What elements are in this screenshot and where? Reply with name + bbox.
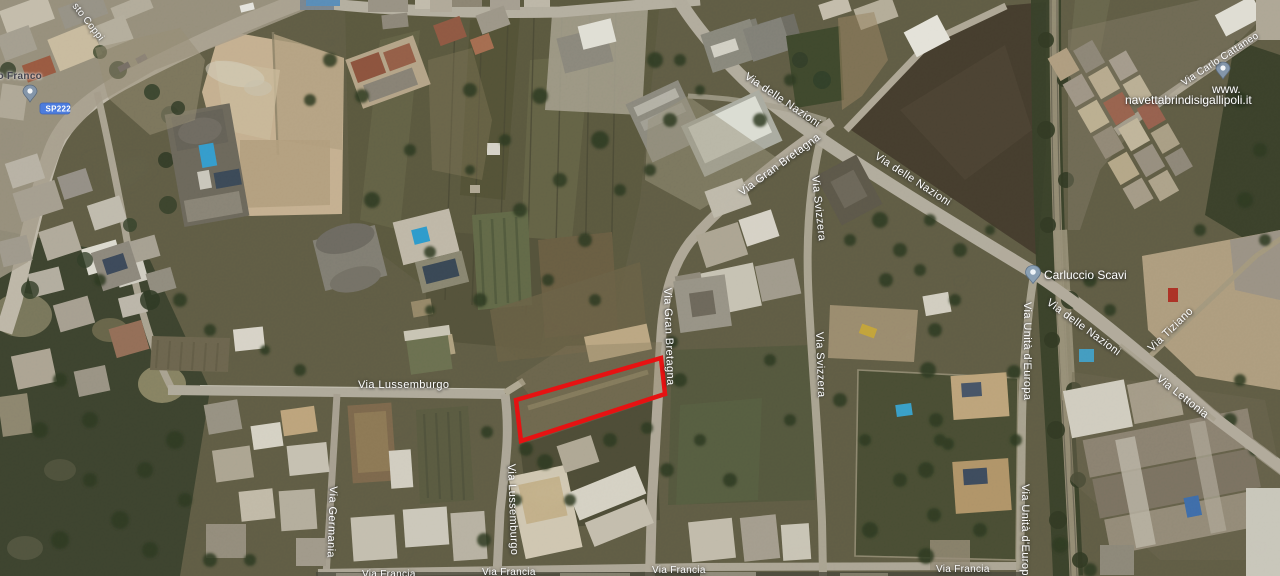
svg-text:Carluccio Scavi: Carluccio Scavi bbox=[1044, 268, 1127, 282]
svg-text:SP222: SP222 bbox=[46, 105, 72, 114]
svg-text:Via Unità d'Europa: Via Unità d'Europa bbox=[1021, 302, 1033, 401]
svg-text:Via Francia: Via Francia bbox=[482, 567, 536, 576]
svg-text:Via Francia: Via Francia bbox=[936, 564, 990, 575]
svg-text:Via Lussemburgo: Via Lussemburgo bbox=[358, 379, 449, 391]
svg-text:Via Unità d'Europa: Via Unità d'Europa bbox=[1019, 484, 1031, 576]
svg-text:Via Francia: Via Francia bbox=[652, 565, 706, 576]
svg-text:Via Svizzera: Via Svizzera bbox=[813, 332, 827, 399]
svg-text:Via Francia: Via Francia bbox=[362, 569, 416, 576]
svg-text:navettabrindisigallipoli.it: navettabrindisigallipoli.it bbox=[1125, 93, 1252, 107]
svg-text:Via Germania: Via Germania bbox=[324, 486, 339, 559]
svg-text:ampo Franco: ampo Franco bbox=[0, 71, 42, 82]
